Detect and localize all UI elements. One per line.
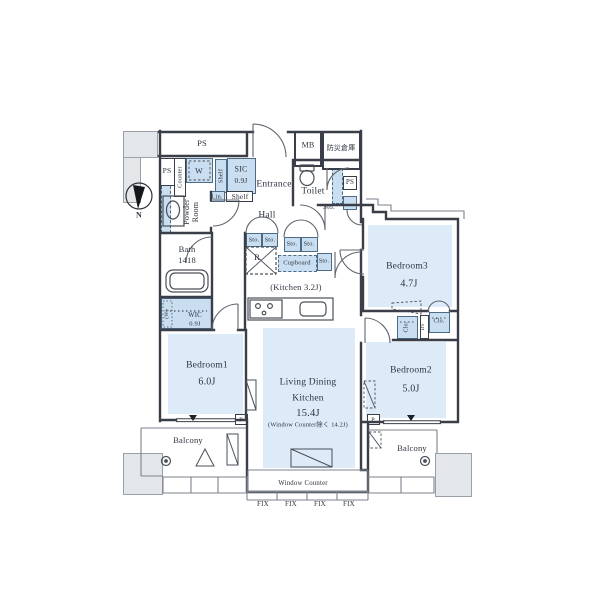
wic-size-label: 0.9J [189,320,200,327]
balcony-right-label: Balcony [397,444,427,454]
floor-plan: PS MB 防災倉庫 PS Counter W Shelf SIC 0.9J E… [0,0,606,601]
balcony-drain-left [162,457,171,466]
refrigerator-cross [246,247,276,274]
bathtub [166,270,208,292]
fix-label-3: FIX [314,501,326,509]
hall-storage-3-label: Sto. [287,240,298,247]
bedroom1-name-label: Bedroom1 [186,361,228,372]
kitchen-counter [248,298,333,320]
counter-label: Counter [176,166,183,188]
bedroom1-size-label: 6.0J [198,376,215,387]
bath-name-label: Bath [179,245,196,255]
fridge-label: R [254,253,260,263]
shelf-vertical-label: Shelf [217,169,224,183]
powder-line1: Powder [182,199,191,225]
ds-label: DS [421,324,427,331]
window-counter-desk [291,449,332,467]
hall-storage-4-label: Sto. [304,240,315,247]
wic-name-label: WIC [188,312,202,320]
vanity-sink [163,196,184,226]
pillar-right-label: P [371,416,375,423]
washer-label: W [195,168,203,177]
closet-right-label: Clo. [434,319,445,326]
bedroom3-size-label: 4.7J [400,278,417,289]
bedroom2-ac-space [364,381,375,408]
bousai-label: 防災倉庫 [327,145,356,153]
window-counter-label: Window Counter [278,480,328,488]
balcony-left-label: Balcony [173,436,203,446]
toilet-storage-label: Sto. [323,204,335,212]
toilet-bowl [300,165,314,186]
closet-left-label: Clo. [404,322,411,333]
linen-label: Lin. [211,193,222,200]
ps-main-label: PS [197,139,207,149]
fix-label-4: FIX [343,501,355,509]
wic-side-label: (W) [164,309,170,318]
cupboard-label: Cupboard [283,259,311,266]
ldk-note-label: (Window Counter除く 14.2J) [268,421,348,428]
bedroom3-name-label: Bedroom3 [386,262,428,273]
compass [126,183,152,209]
kitchen-storage-small-label: Sto. [319,259,329,266]
hall-storage-2-label: Sto. [265,236,276,243]
balcony-drain-right [421,457,430,466]
balcony-right-unit [369,432,381,448]
ldk-size-label: 15.4J [296,408,319,420]
sic-name-label: SIC [234,166,247,175]
toilet-label: Toilet [301,187,324,198]
ps-entry-label: PS [163,167,172,175]
powder-room-label: Powder Room [183,199,201,225]
compass-needle [133,185,145,209]
ldk-line2-label: Kitchen [292,394,323,405]
bedroom2-size-label: 5.0J [402,383,419,394]
ps-toilet-label: PS [346,179,354,187]
mb-label: MB [302,142,315,151]
evacuation-hatch [196,449,214,466]
bedroom2-name-label: Bedroom2 [390,366,432,377]
balcony-left-unit [227,434,238,465]
sic-size-label: 0.9J [234,177,247,185]
bedroom1-sliding-door [246,380,256,410]
compass-north-label: N [136,212,142,221]
hall-label: Hall [258,211,275,222]
fix-label-2: FIX [285,501,297,509]
ldk-line1-label: Living Dining [280,378,337,389]
powder-line2: Room [191,202,200,222]
entrance-label: Entrance [256,180,291,191]
kitchen-sink [300,302,326,316]
fix-label-1: FIX [257,501,269,509]
bath-size-label: 1418 [178,256,196,266]
hall-storage-1-label: Sto. [249,236,260,243]
kitchen-size-label: (Kitchen 3.2J) [270,283,321,293]
shelf-lower-label: Shelf [232,193,249,201]
pillar-left-label: P [239,416,243,423]
plan-linework [0,0,606,601]
